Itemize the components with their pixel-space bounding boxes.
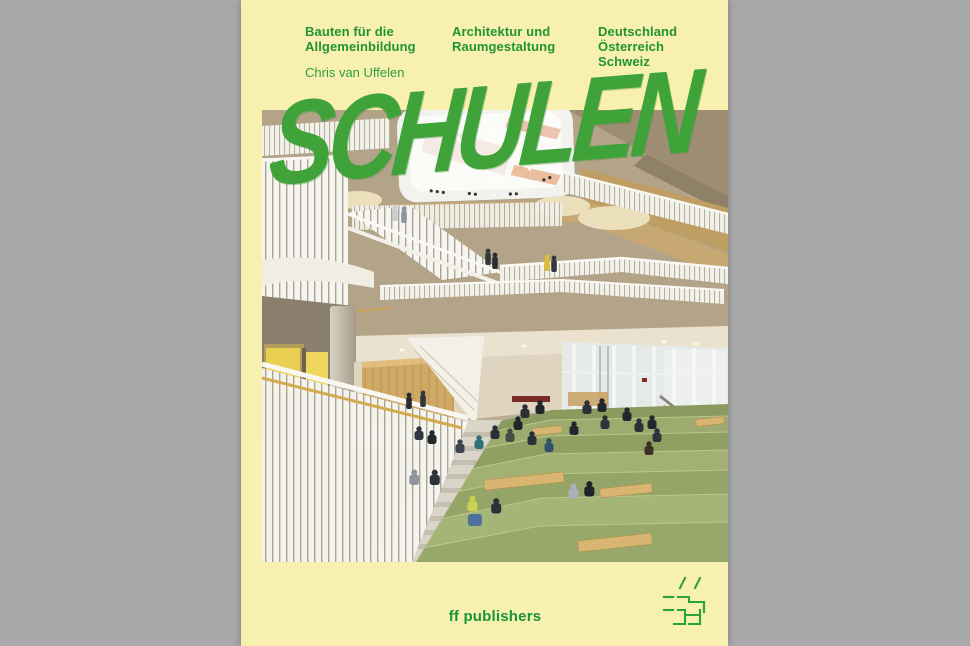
header-line: Architektur und	[452, 24, 555, 39]
header-column-subject: Bauten für die Allgemeinbildung	[305, 24, 416, 54]
header-line: Deutschland	[598, 24, 677, 39]
page-background: Bauten für die Allgemeinbildung Architek…	[0, 0, 970, 646]
double-hash-icon	[652, 572, 718, 638]
book-cover: Bauten für die Allgemeinbildung Architek…	[241, 0, 728, 646]
header-column-topic: Architektur und Raumgestaltung	[452, 24, 555, 54]
book-title: SCHULEN	[266, 51, 701, 204]
header-line: Allgemeinbildung	[305, 39, 416, 54]
header-line: Raumgestaltung	[452, 39, 555, 54]
header-line: Bauten für die	[305, 24, 416, 39]
